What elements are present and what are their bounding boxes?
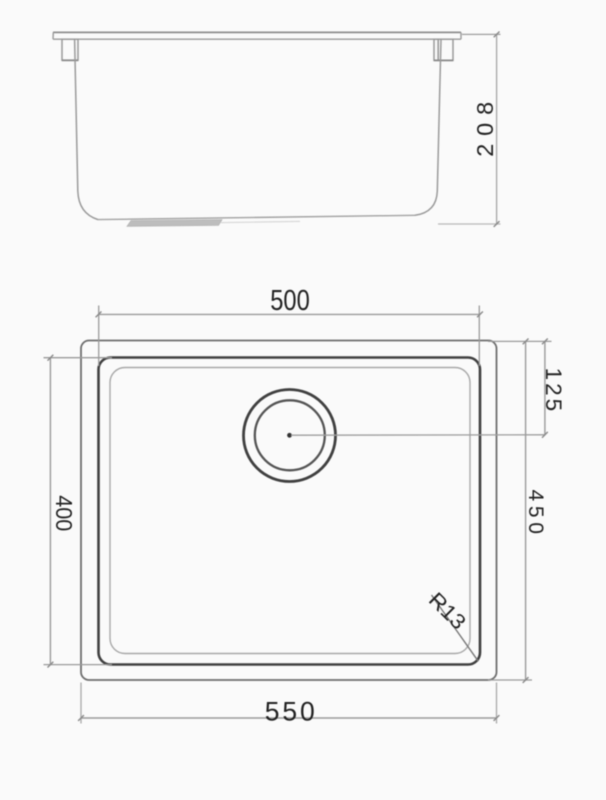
svg-text:550: 550 xyxy=(265,696,315,726)
svg-text:450: 450 xyxy=(524,489,547,534)
svg-text:400: 400 xyxy=(51,495,77,531)
svg-text:500: 500 xyxy=(270,285,310,317)
svg-text:125: 125 xyxy=(541,368,566,412)
svg-text:208: 208 xyxy=(472,102,498,157)
